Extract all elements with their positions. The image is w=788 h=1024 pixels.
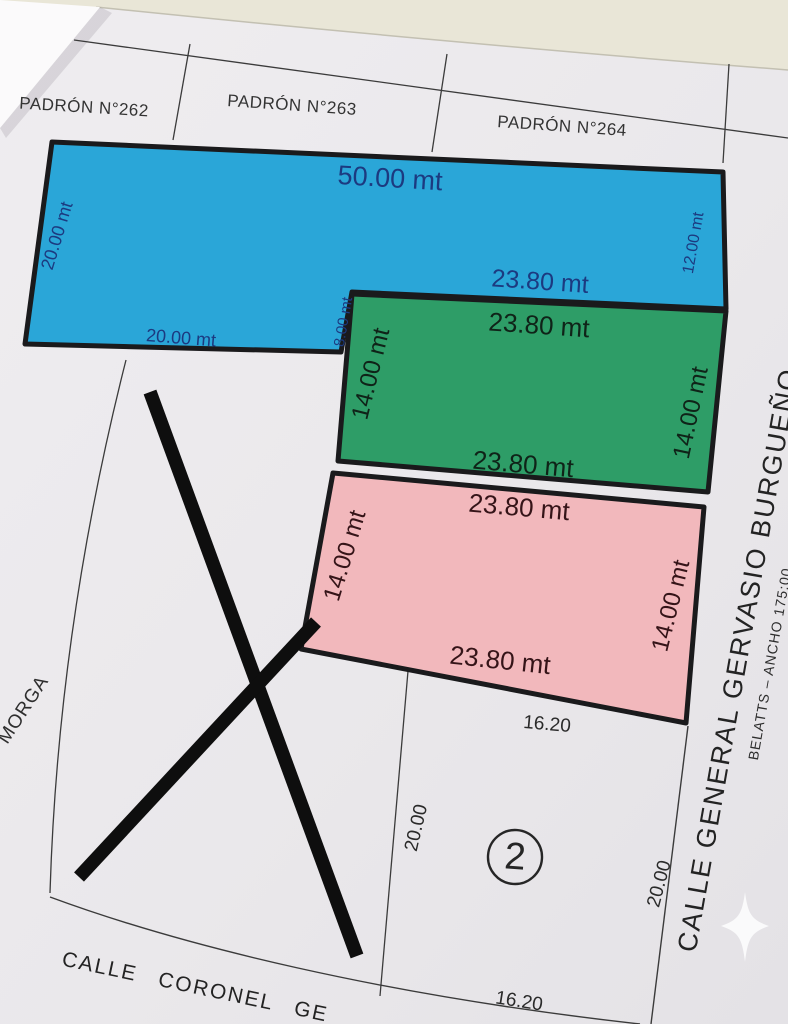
lot2-number: 2 (503, 835, 527, 878)
plan-canvas: PADRÓN N°262 PADRÓN N°263 PADRÓN N°264 5… (0, 0, 788, 1024)
survey-plan-photo: PADRÓN N°262 PADRÓN N°263 PADRÓN N°264 5… (0, 0, 788, 1024)
lot2-top-dimension: 16.20 (522, 712, 571, 737)
